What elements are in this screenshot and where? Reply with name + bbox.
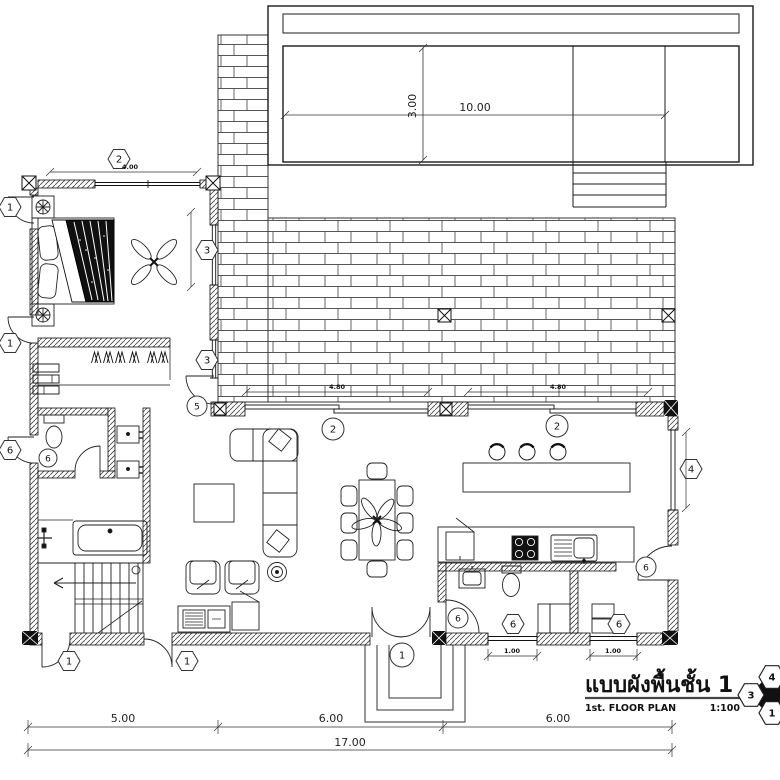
deck-column-marker [438,309,451,322]
shower-duct [538,604,570,633]
column-marker [22,176,36,190]
title-block: แบบผังพื้นชั้น 1 1st. FLOOR PLAN 1:100 3… [585,666,780,725]
living-room [178,429,298,632]
tag-door-bath: 6 [448,608,468,628]
sliding-door-2 [468,405,636,413]
armchair [186,561,220,594]
bedroom-top-window [95,180,200,188]
nightstand [32,196,54,218]
entry-steps [365,645,465,722]
dining-chair [397,540,413,560]
dim-terrace-door-1: 4.80 [329,383,346,391]
deck-main [268,218,675,402]
stove [512,536,538,560]
pool-surround [268,6,753,165]
side-table-lamp [268,563,287,582]
tag-entry-door: 1 [390,643,414,667]
column-marker [214,403,226,415]
armchair [225,561,259,594]
shower-valve [38,528,52,548]
wc-bath [38,415,147,555]
svg-text:3: 3 [204,246,210,257]
bar-counter [463,463,630,492]
tag-door-wc-ext: 6 [0,441,21,460]
svg-text:4: 4 [769,673,776,684]
tag-window-east: 4 [680,460,702,479]
bath2-basin [459,566,485,588]
tag-door-store: 6 [636,557,656,577]
column-black [432,631,446,645]
bedroom [32,196,179,326]
dim-terrace-door-2: 4.80 [550,383,567,391]
dim-bath-window: 1.00 [504,647,521,655]
dim-bay-2: 6.00 [319,712,344,725]
coffee-table [194,484,234,522]
kitchen [438,444,634,564]
keyplan-marker: 3 4 1 [738,666,780,725]
deck-walkway-strip [218,35,268,402]
pool-steps [573,162,666,207]
column-black [662,631,678,645]
tag-door-wc: 6 [39,449,57,467]
bar-stool [489,444,505,460]
swimming-pool-area: 10.00 3.00 [268,6,753,207]
dim-pool-length: 10.00 [459,101,491,114]
column-black [22,631,38,645]
bar-stool [519,444,535,460]
toilet-wc [44,415,64,448]
dim-bay-1: 5.00 [111,712,136,725]
dining-chair [367,561,387,577]
dim-bay-3: 6.00 [546,712,571,725]
svg-text:5: 5 [194,403,200,413]
svg-text:1: 1 [7,203,13,214]
sofa-pillow [267,530,289,552]
svg-text:6: 6 [616,620,622,631]
plan-title-thai: แบบผังพื้นชั้น 1 [585,668,733,698]
floor-plan-drawing: 10.00 3.00 [0,0,780,780]
tv-console [178,591,259,632]
plan-title-english: 1st. FLOOR PLAN [585,703,676,714]
tag-door-living-ext: 1 [176,652,198,671]
dining-area [341,463,413,577]
svg-text:1: 1 [184,657,190,668]
wash-basin [117,461,143,478]
svg-text:2: 2 [330,425,336,436]
dining-chair [397,486,413,506]
svg-text:6: 6 [45,455,51,465]
svg-text:6: 6 [643,564,649,574]
pillow [37,263,58,299]
sofa-pillow [269,429,291,451]
closet [33,347,170,394]
deck-column-marker [662,309,675,322]
tag-window-closet: 3 [196,351,218,370]
stair-direction-arrow [54,578,136,588]
dim-pool-width: 3.00 [406,94,419,119]
staircase [38,563,143,633]
tag-axis-kitchen: 2 [546,415,568,437]
ceiling-fan-bedroom [129,237,180,288]
tag-window-store: 6 [608,615,630,634]
svg-text:6: 6 [455,615,461,625]
svg-text:6: 6 [510,620,516,631]
bathtub [38,520,147,555]
entry-double-door [372,607,430,637]
wc-interior-door [75,446,100,471]
sliding-door-1 [245,405,428,413]
column-marker [206,176,220,190]
column-black [664,400,678,416]
bath-window [488,633,537,645]
kitchen-sink [551,535,597,564]
east-window [668,430,678,510]
sofa-l-shaped [230,429,298,557]
dining-chair [341,486,357,506]
column-marker [440,403,452,415]
svg-text:6: 6 [7,446,13,457]
tag-door-terrace: 5 [187,396,207,416]
dim-bedroom-window: 4.00 [122,163,139,171]
dim-total-width: 17.00 [334,736,366,749]
bed [32,218,114,304]
svg-text:4: 4 [688,465,694,476]
bathroom-2 [459,566,614,633]
svg-text:1: 1 [399,651,405,662]
plan-scale: 1:100 [710,703,741,714]
tag-door-stair-ext: 1 [58,652,80,671]
tag-door-hall-ext: 1 [0,334,21,353]
svg-text:1: 1 [7,339,13,350]
bar-stool [550,444,566,460]
refrigerator [446,518,474,560]
svg-text:3: 3 [748,691,755,702]
dim-store-window: 1.00 [605,647,622,655]
wash-basin [117,426,143,443]
tag-window-bath: 6 [502,615,524,634]
tag-window-bedroom-side: 3 [196,241,218,260]
svg-text:1: 1 [66,657,72,668]
svg-text:1: 1 [769,709,776,720]
svg-text:2: 2 [554,422,560,433]
dining-chair [341,540,357,560]
store-window [590,633,637,645]
tag-door-bedroom-ext: 1 [0,198,21,217]
cabinet [232,602,259,630]
svg-text:3: 3 [204,356,210,367]
tag-axis-living: 2 [322,418,344,440]
living-exterior-door [144,639,172,667]
floor-plan-sheet: 10.00 3.00 [0,0,780,780]
dining-chair [367,463,387,479]
